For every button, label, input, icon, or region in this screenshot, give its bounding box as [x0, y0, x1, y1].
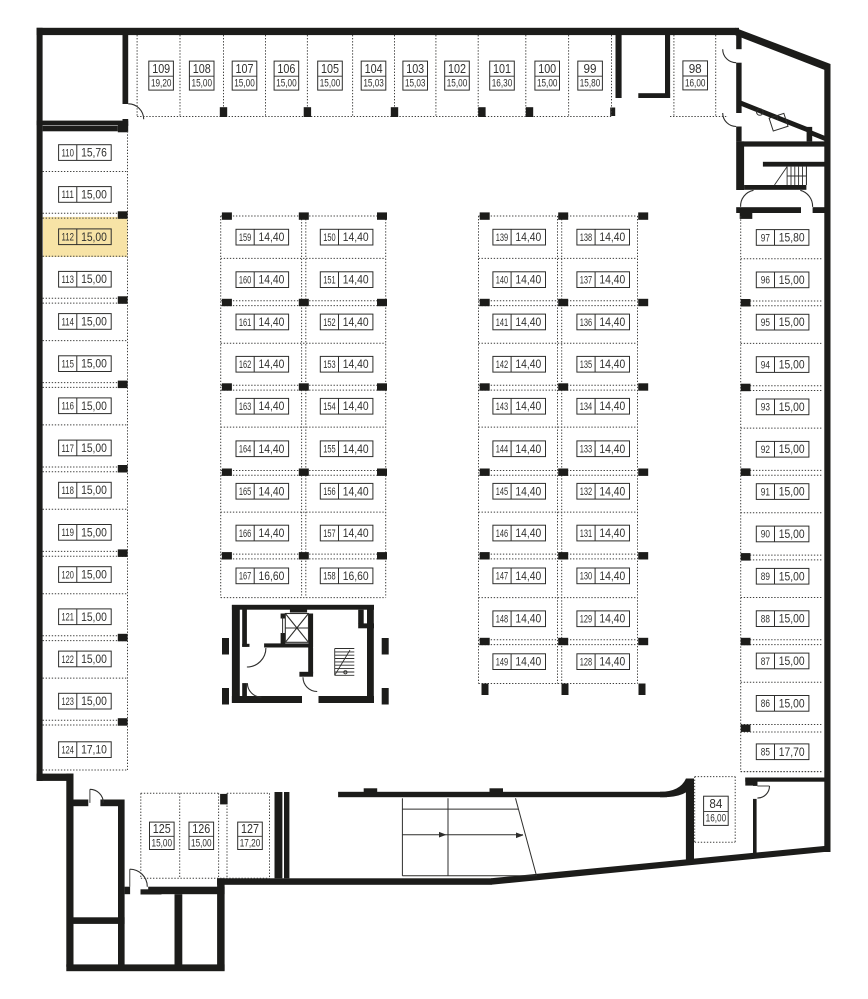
- svg-text:14,40: 14,40: [343, 526, 369, 540]
- svg-text:14,40: 14,40: [599, 315, 625, 329]
- svg-text:17,10: 17,10: [81, 743, 107, 757]
- svg-text:85: 85: [761, 747, 770, 759]
- svg-text:97: 97: [761, 232, 770, 244]
- svg-text:144: 144: [496, 444, 508, 456]
- svg-text:14,40: 14,40: [515, 526, 541, 540]
- svg-text:167: 167: [239, 571, 251, 583]
- svg-text:14,40: 14,40: [259, 399, 285, 413]
- svg-text:15,00: 15,00: [191, 838, 212, 850]
- svg-text:117: 117: [62, 443, 74, 455]
- svg-text:92: 92: [761, 444, 770, 456]
- svg-text:119: 119: [62, 527, 74, 539]
- svg-text:14,40: 14,40: [343, 399, 369, 413]
- svg-text:14,40: 14,40: [259, 357, 285, 371]
- svg-text:122: 122: [62, 654, 74, 666]
- svg-text:143: 143: [496, 401, 508, 413]
- svg-text:15,00: 15,00: [81, 694, 107, 708]
- svg-text:14,40: 14,40: [259, 230, 285, 244]
- svg-text:162: 162: [239, 359, 251, 371]
- svg-text:116: 116: [62, 401, 74, 413]
- svg-text:14,40: 14,40: [259, 315, 285, 329]
- svg-text:99: 99: [584, 62, 597, 76]
- svg-text:15,00: 15,00: [779, 612, 805, 626]
- svg-text:161: 161: [239, 317, 251, 329]
- svg-text:131: 131: [580, 528, 592, 540]
- svg-text:15,00: 15,00: [81, 399, 107, 413]
- svg-text:14,40: 14,40: [599, 399, 625, 413]
- svg-text:14,40: 14,40: [259, 442, 285, 456]
- svg-text:91: 91: [761, 486, 770, 498]
- svg-text:14,40: 14,40: [599, 357, 625, 371]
- svg-text:166: 166: [239, 528, 251, 540]
- svg-text:86: 86: [761, 698, 770, 710]
- svg-text:138: 138: [580, 232, 592, 244]
- svg-text:165: 165: [239, 486, 251, 498]
- svg-text:146: 146: [496, 528, 508, 540]
- svg-text:14,40: 14,40: [343, 484, 369, 498]
- svg-text:14,40: 14,40: [343, 357, 369, 371]
- svg-text:15,76: 15,76: [81, 146, 107, 160]
- svg-text:158: 158: [323, 571, 335, 583]
- svg-text:135: 135: [580, 359, 592, 371]
- svg-text:84: 84: [709, 797, 722, 811]
- svg-text:95: 95: [761, 317, 770, 329]
- svg-text:115: 115: [62, 358, 74, 370]
- svg-text:142: 142: [496, 359, 508, 371]
- svg-text:14,40: 14,40: [343, 315, 369, 329]
- svg-text:14,40: 14,40: [599, 230, 625, 244]
- svg-text:15,00: 15,00: [81, 272, 107, 286]
- svg-text:102: 102: [448, 62, 466, 76]
- svg-text:15,00: 15,00: [779, 273, 805, 287]
- svg-text:15,00: 15,00: [779, 400, 805, 414]
- svg-text:15,00: 15,00: [537, 78, 558, 90]
- svg-text:113: 113: [62, 274, 74, 286]
- svg-text:15,00: 15,00: [81, 652, 107, 666]
- svg-text:15,00: 15,00: [81, 483, 107, 497]
- svg-text:89: 89: [761, 571, 770, 583]
- svg-text:98: 98: [689, 62, 702, 76]
- svg-text:101: 101: [493, 62, 511, 76]
- svg-text:96: 96: [761, 275, 770, 287]
- svg-text:154: 154: [323, 401, 335, 413]
- svg-text:130: 130: [580, 571, 592, 583]
- svg-text:14,40: 14,40: [515, 357, 541, 371]
- svg-text:14,40: 14,40: [515, 655, 541, 669]
- svg-text:145: 145: [496, 486, 508, 498]
- svg-text:14,40: 14,40: [599, 526, 625, 540]
- svg-text:15,00: 15,00: [81, 230, 107, 244]
- svg-text:152: 152: [323, 317, 335, 329]
- svg-text:15,00: 15,00: [234, 78, 255, 90]
- svg-text:17,20: 17,20: [240, 838, 261, 850]
- svg-text:15,00: 15,00: [779, 315, 805, 329]
- svg-text:90: 90: [761, 529, 770, 541]
- svg-text:125: 125: [153, 822, 171, 836]
- svg-text:14,40: 14,40: [599, 273, 625, 287]
- svg-text:151: 151: [323, 274, 335, 286]
- svg-text:157: 157: [323, 528, 335, 540]
- svg-text:107: 107: [236, 62, 254, 76]
- svg-text:14,40: 14,40: [515, 442, 541, 456]
- svg-text:14,40: 14,40: [515, 273, 541, 287]
- svg-text:14,40: 14,40: [259, 526, 285, 540]
- svg-text:15,00: 15,00: [81, 610, 107, 624]
- svg-text:112: 112: [62, 232, 74, 244]
- svg-text:14,40: 14,40: [343, 230, 369, 244]
- svg-text:16,60: 16,60: [259, 569, 285, 583]
- svg-text:141: 141: [496, 317, 508, 329]
- svg-text:15,80: 15,80: [580, 78, 601, 90]
- svg-text:15,00: 15,00: [779, 485, 805, 499]
- svg-text:16,60: 16,60: [343, 569, 369, 583]
- svg-text:15,00: 15,00: [152, 838, 173, 850]
- svg-text:14,40: 14,40: [515, 484, 541, 498]
- svg-text:14,40: 14,40: [599, 442, 625, 456]
- svg-text:109: 109: [152, 62, 170, 76]
- svg-text:14,40: 14,40: [259, 484, 285, 498]
- svg-text:15,00: 15,00: [81, 187, 107, 201]
- svg-text:100: 100: [538, 62, 556, 76]
- svg-text:88: 88: [761, 613, 770, 625]
- svg-text:15,00: 15,00: [81, 315, 107, 329]
- svg-text:94: 94: [761, 359, 770, 371]
- svg-text:14,40: 14,40: [515, 399, 541, 413]
- svg-text:14,40: 14,40: [599, 569, 625, 583]
- svg-text:14,40: 14,40: [599, 484, 625, 498]
- svg-text:14,40: 14,40: [343, 273, 369, 287]
- svg-text:110: 110: [62, 147, 74, 159]
- svg-text:14,40: 14,40: [259, 273, 285, 287]
- svg-text:108: 108: [193, 62, 211, 76]
- svg-text:118: 118: [62, 485, 74, 497]
- svg-text:139: 139: [496, 232, 508, 244]
- svg-text:19,20: 19,20: [151, 78, 172, 90]
- svg-text:147: 147: [496, 571, 508, 583]
- svg-text:16,00: 16,00: [706, 813, 727, 825]
- svg-text:160: 160: [239, 274, 251, 286]
- svg-text:150: 150: [323, 232, 335, 244]
- svg-text:114: 114: [62, 316, 74, 328]
- svg-text:15,00: 15,00: [779, 527, 805, 541]
- svg-text:14,40: 14,40: [515, 230, 541, 244]
- svg-text:16,30: 16,30: [492, 78, 513, 90]
- svg-text:15,80: 15,80: [779, 231, 805, 245]
- svg-text:15,00: 15,00: [779, 654, 805, 668]
- svg-text:148: 148: [496, 614, 508, 626]
- svg-text:149: 149: [496, 656, 508, 668]
- svg-text:127: 127: [241, 822, 259, 836]
- svg-text:155: 155: [323, 444, 335, 456]
- svg-text:136: 136: [580, 317, 592, 329]
- svg-text:15,00: 15,00: [779, 358, 805, 372]
- svg-text:15,00: 15,00: [81, 525, 107, 539]
- svg-text:15,00: 15,00: [81, 357, 107, 371]
- svg-text:126: 126: [192, 822, 210, 836]
- svg-text:15,00: 15,00: [779, 442, 805, 456]
- svg-text:106: 106: [277, 62, 295, 76]
- svg-text:120: 120: [62, 569, 74, 581]
- svg-text:133: 133: [580, 444, 592, 456]
- svg-text:153: 153: [323, 359, 335, 371]
- svg-text:14,40: 14,40: [515, 315, 541, 329]
- svg-text:14,40: 14,40: [515, 569, 541, 583]
- svg-text:159: 159: [239, 232, 251, 244]
- svg-text:128: 128: [580, 656, 592, 668]
- svg-text:15,00: 15,00: [447, 78, 468, 90]
- svg-text:15,00: 15,00: [320, 78, 341, 90]
- svg-text:156: 156: [323, 486, 335, 498]
- svg-text:15,00: 15,00: [81, 441, 107, 455]
- svg-text:15,00: 15,00: [779, 569, 805, 583]
- svg-text:104: 104: [365, 62, 383, 76]
- svg-text:15,03: 15,03: [363, 78, 384, 90]
- svg-text:14,40: 14,40: [343, 442, 369, 456]
- svg-text:163: 163: [239, 401, 251, 413]
- svg-text:17,70: 17,70: [779, 745, 805, 759]
- svg-text:14,40: 14,40: [599, 612, 625, 626]
- svg-text:111: 111: [62, 189, 74, 201]
- svg-text:15,00: 15,00: [779, 696, 805, 710]
- svg-text:87: 87: [761, 656, 770, 668]
- svg-text:124: 124: [62, 744, 74, 756]
- svg-text:93: 93: [761, 402, 770, 414]
- svg-text:16,00: 16,00: [685, 77, 706, 89]
- svg-text:129: 129: [580, 614, 592, 626]
- svg-text:164: 164: [239, 444, 251, 456]
- svg-text:121: 121: [62, 612, 74, 624]
- svg-text:137: 137: [580, 274, 592, 286]
- svg-text:15,00: 15,00: [276, 78, 297, 90]
- svg-text:123: 123: [62, 696, 74, 708]
- svg-text:103: 103: [406, 62, 424, 76]
- svg-text:132: 132: [580, 486, 592, 498]
- svg-text:15,00: 15,00: [192, 78, 213, 90]
- svg-text:134: 134: [580, 401, 592, 413]
- svg-text:105: 105: [321, 62, 339, 76]
- svg-text:14,40: 14,40: [599, 655, 625, 669]
- svg-text:15,00: 15,00: [81, 568, 107, 582]
- svg-text:15,03: 15,03: [405, 78, 426, 90]
- svg-text:140: 140: [496, 274, 508, 286]
- svg-text:14,40: 14,40: [515, 612, 541, 626]
